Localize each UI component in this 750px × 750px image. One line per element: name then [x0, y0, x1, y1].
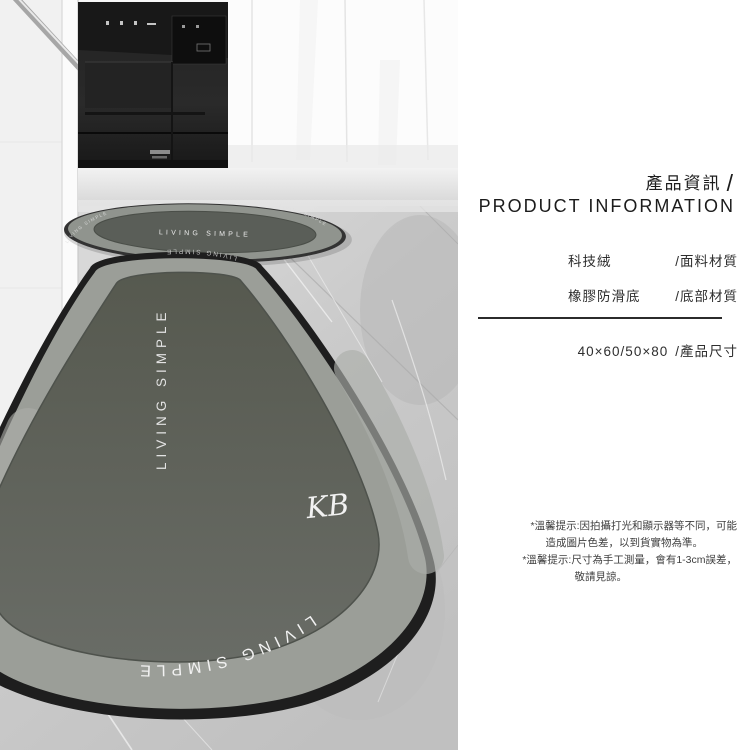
- product-info-page: LIVING SIMPLE LIVING SIMPLE LIVING SIMPL…: [0, 0, 750, 750]
- title-slash: /: [727, 170, 735, 196]
- material-label: /面料材質: [675, 250, 738, 270]
- tip-line: 造成圖片色差，以到貨實物為準。: [475, 535, 737, 552]
- large-mat-vertical-text: LIVING SIMPLE: [154, 307, 169, 470]
- kitchen-photo: LIVING SIMPLE LIVING SIMPLE LIVING SIMPL…: [0, 0, 458, 750]
- appliance-display-panel: [172, 16, 226, 64]
- material-value: 科技絨: [568, 250, 612, 270]
- material-label: /底部材質: [675, 285, 738, 305]
- size-label: /產品尺寸: [675, 344, 738, 359]
- right-cabinets: [228, 0, 458, 168]
- material-row-fabric: 科技絨 /面料材質: [568, 250, 738, 270]
- built-in-appliance: [78, 2, 228, 172]
- page-title-zh: 產品資訊/: [646, 169, 735, 197]
- tip-line: *溫馨提示:尺寸為手工測量，會有1-3cm誤差，: [475, 552, 737, 569]
- section-divider: [478, 317, 722, 319]
- kitchen-photo-svg: LIVING SIMPLE LIVING SIMPLE LIVING SIMPL…: [0, 0, 458, 750]
- large-mat-signature: KB: [303, 487, 350, 525]
- materials-list: 科技絨 /面料材質 橡膠防滑底 /底部材質: [568, 250, 738, 320]
- tip-line: *溫馨提示:因拍攝打光和顯示器等不同，可能: [475, 518, 737, 535]
- product-size-row: 40×60/50×80/產品尺寸: [578, 340, 738, 360]
- page-title-en: PRODUCT INFORMATION: [479, 196, 735, 217]
- size-value: 40×60/50×80: [578, 344, 669, 359]
- info-panel: 產品資訊/ PRODUCT INFORMATION 科技絨 /面料材質 橡膠防滑…: [458, 0, 750, 750]
- disclaimer-tips: *溫馨提示:因拍攝打光和顯示器等不同，可能 造成圖片色差，以到貨實物為準。 *溫…: [475, 518, 737, 586]
- tip-line: 敬請見諒。: [475, 569, 737, 586]
- material-value: 橡膠防滑底: [568, 285, 641, 305]
- material-row-bottom: 橡膠防滑底 /底部材質: [568, 285, 738, 305]
- page-title-zh-text: 產品資訊: [646, 174, 722, 193]
